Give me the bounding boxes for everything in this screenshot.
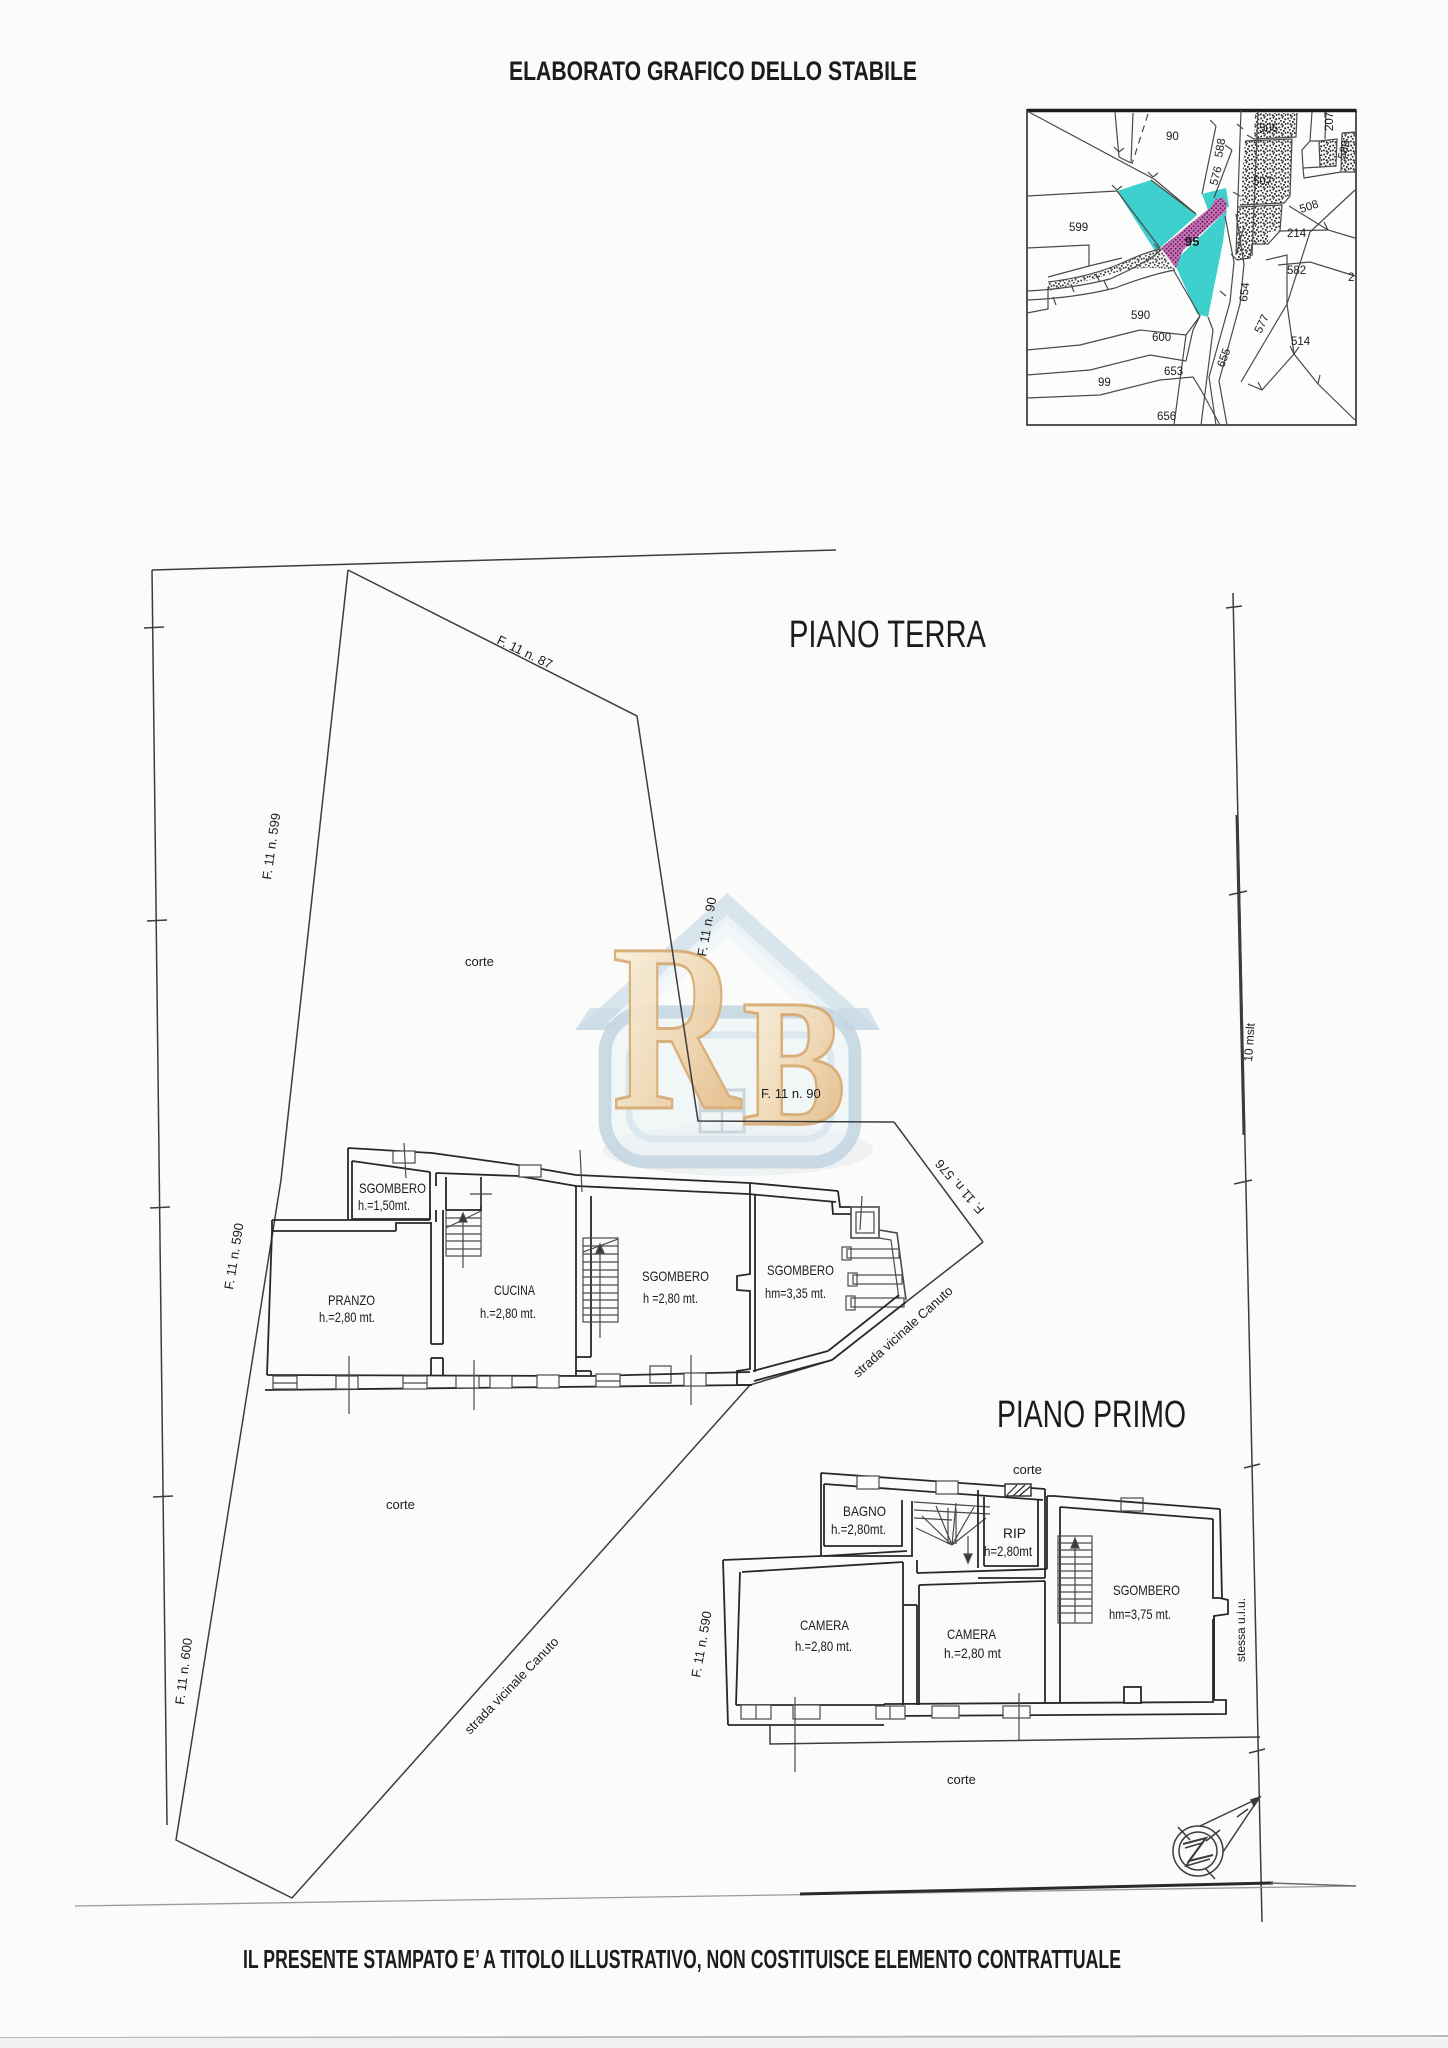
svg-text:507: 507 [1253, 176, 1272, 188]
svg-text:SGOMBERO: SGOMBERO [767, 1262, 834, 1278]
svg-text:ELABORATO GRAFICO DELLO STABIL: ELABORATO GRAFICO DELLO STABILE [509, 56, 917, 86]
svg-text:SGOMBERO: SGOMBERO [1113, 1582, 1180, 1598]
svg-text:B: B [742, 963, 846, 1164]
svg-text:656: 656 [1157, 411, 1176, 423]
svg-text:corte: corte [1013, 1462, 1042, 1477]
svg-text:653: 653 [1164, 366, 1183, 378]
svg-text:99: 99 [1098, 377, 1111, 389]
svg-text:h=2,80mt: h=2,80mt [984, 1544, 1032, 1559]
svg-text:599: 599 [1069, 222, 1088, 234]
svg-text:CUCINA: CUCINA [494, 1282, 536, 1298]
svg-text:R: R [612, 894, 742, 1160]
svg-text:BAGNO: BAGNO [843, 1503, 886, 1519]
svg-text:h =2,80 mt.: h =2,80 mt. [643, 1291, 698, 1306]
svg-text:stessa u.i.u.: stessa u.i.u. [1234, 1598, 1248, 1662]
svg-text:h.=2,80 mt.: h.=2,80 mt. [795, 1639, 852, 1654]
svg-text:514: 514 [1291, 336, 1311, 348]
svg-text:IL PRESENTE STAMPATO E’ A TITO: IL PRESENTE STAMPATO E’ A TITOLO ILLUSTR… [243, 1944, 1121, 1974]
svg-text:h.=2,80 mt: h.=2,80 mt [944, 1646, 1001, 1661]
svg-text:PRANZO: PRANZO [328, 1292, 375, 1308]
svg-text:hm=3,75 mt.: hm=3,75 mt. [1109, 1607, 1171, 1622]
svg-text:600: 600 [1152, 332, 1171, 344]
svg-text:h.=2,80mt.: h.=2,80mt. [831, 1522, 886, 1537]
svg-text:214: 214 [1287, 228, 1307, 240]
svg-text:PIANO PRIMO: PIANO PRIMO [997, 1394, 1186, 1436]
svg-text:95: 95 [1185, 234, 1199, 249]
svg-text:SGOMBERO: SGOMBERO [359, 1180, 426, 1196]
svg-text:CAMERA: CAMERA [800, 1617, 850, 1633]
svg-text:RIP: RIP [1003, 1525, 1026, 1541]
svg-text:10 mslt: 10 mslt [1241, 1022, 1258, 1062]
svg-text:h.=2,80 mt.: h.=2,80 mt. [319, 1310, 375, 1325]
svg-text:582: 582 [1287, 265, 1306, 277]
svg-text:590: 590 [1131, 310, 1150, 322]
svg-text:PIANO TERRA: PIANO TERRA [789, 614, 986, 656]
svg-text:corte: corte [465, 954, 494, 969]
svg-text:h.=1,50mt.: h.=1,50mt. [358, 1198, 410, 1213]
svg-text:654: 654 [1238, 281, 1252, 302]
svg-text:90: 90 [1166, 131, 1179, 143]
svg-text:corte: corte [386, 1497, 415, 1512]
svg-text:corte: corte [947, 1772, 976, 1787]
svg-text:207: 207 [1324, 112, 1336, 131]
svg-text:506: 506 [1259, 123, 1278, 135]
svg-text:h.=2,80 mt.: h.=2,80 mt. [480, 1306, 536, 1321]
svg-text:CAMERA: CAMERA [947, 1626, 997, 1642]
svg-text:SGOMBERO: SGOMBERO [642, 1268, 709, 1284]
svg-text:hm=3,35 mt.: hm=3,35 mt. [765, 1286, 826, 1301]
svg-text:2: 2 [1348, 272, 1354, 284]
svg-text:F. 11 n. 90: F. 11 n. 90 [761, 1086, 821, 1101]
